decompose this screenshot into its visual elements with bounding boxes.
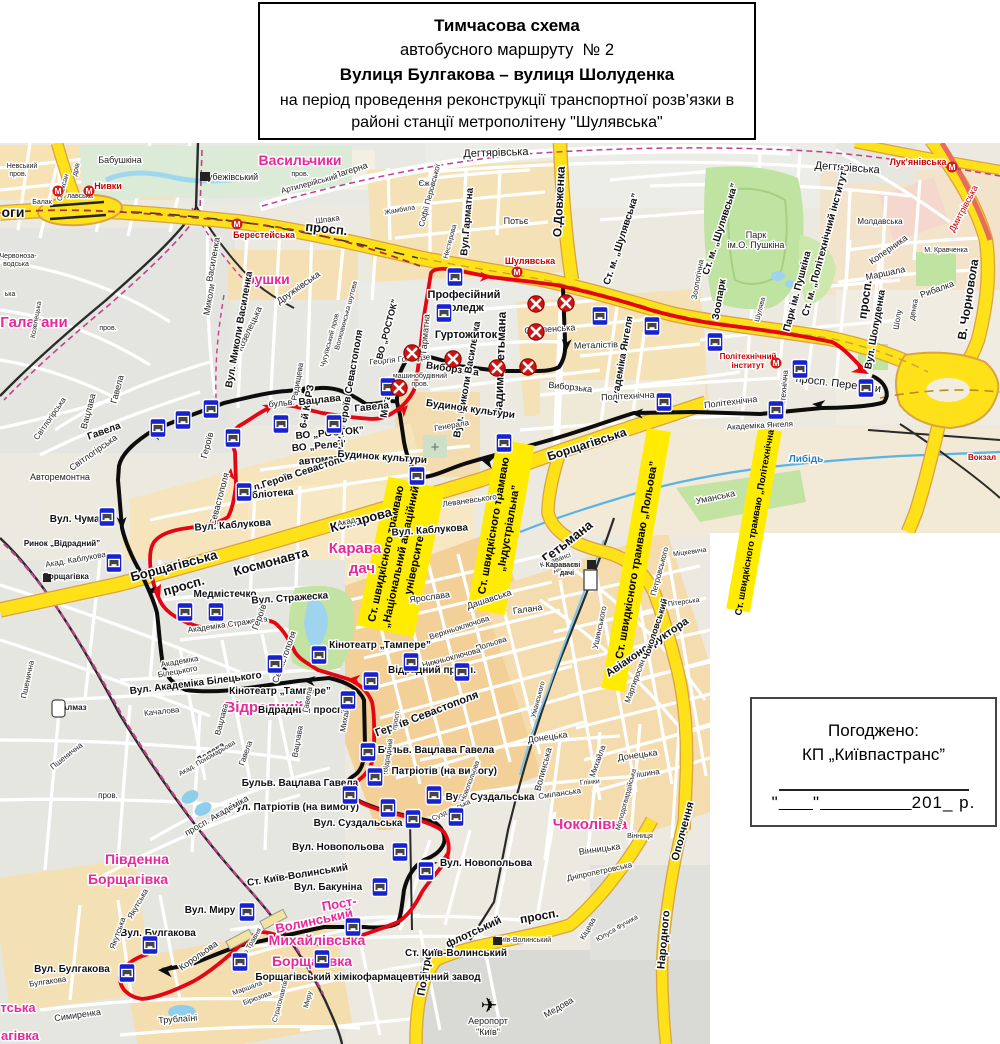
svg-text:пров.: пров. [291, 171, 308, 178]
svg-text:Авторемонтна: Авторемонтна [30, 472, 90, 482]
svg-text:Вокзал: Вокзал [968, 453, 996, 462]
svg-text:Червоноза-: Червоноза- [0, 253, 37, 260]
svg-text:дачі: дачі [560, 569, 574, 577]
svg-text:дач: дач [349, 560, 375, 577]
svg-text:Вул. Бакуніна: Вул. Бакуніна [294, 882, 363, 893]
svg-text:водська: водська [3, 261, 29, 268]
svg-text:Вул. Миру: Вул. Миру [185, 905, 236, 916]
svg-text:Політехнічний: Політехнічний [720, 352, 777, 361]
svg-text:Вул. Суздальська: Вул. Суздальська [446, 792, 535, 803]
svg-text:тська: тська [0, 1000, 36, 1015]
svg-text:М. Кравченка: М. Кравченка [924, 247, 968, 254]
svg-text:Борщагівка: Борщагівка [272, 953, 352, 969]
svg-text:Парк: Парк [746, 230, 766, 240]
svg-text:Невський: Невський [7, 162, 38, 170]
svg-text:Балак: Балак [32, 199, 52, 206]
svg-text:пров.: пров. [98, 791, 118, 800]
svg-text:оги: оги [2, 204, 25, 220]
svg-text:агівка: агівка [1, 1028, 40, 1043]
svg-text:Шулявська: Шулявська [505, 256, 556, 266]
svg-text:Рубежівський: Рубежівський [202, 172, 258, 182]
svg-text:Борщагівський хімікофармацевти: Борщагівський хімікофармацевтичний завод [255, 971, 481, 983]
svg-text:+: + [431, 439, 440, 456]
svg-text:Вул. Патріотів (на вимогу): Вул. Патріотів (на вимогу) [229, 802, 359, 813]
svg-text:Молдавська: Молдавська [857, 217, 903, 226]
svg-text:пров.: пров. [99, 325, 116, 332]
svg-text:Либідь: Либідь [789, 453, 824, 465]
svg-text:✈: ✈ [481, 995, 498, 1017]
svg-text:Вул. Новопольова: Вул. Новопольова [440, 858, 533, 869]
svg-text:Берестейська: Берестейська [233, 230, 296, 240]
svg-text:Металістів: Металістів [574, 339, 619, 351]
svg-text:Медмістечко: Медмістечко [194, 589, 257, 600]
svg-text:Бульв. Вацлава Гавела: Бульв. Вацлава Гавела [378, 745, 495, 756]
svg-text:Ст. Київ-Волинський: Ст. Київ-Волинський [405, 948, 507, 959]
svg-text:Аеропорт: Аеропорт [468, 1016, 508, 1026]
svg-text:Кінотеатр „Тампере”: Кінотеатр „Тампере” [229, 686, 331, 697]
svg-text:Єж: Єж [418, 179, 430, 188]
svg-text:Караваєві: Караваєві [546, 561, 581, 569]
svg-text:Лук’янівська: Лук’янівська [890, 157, 948, 167]
svg-text:ька: ька [5, 291, 16, 298]
svg-text:Київ-Волинський: Київ-Волинський [497, 936, 551, 944]
svg-text:Нивки: Нивки [94, 181, 122, 191]
svg-text:машинобудівний: машинобудівний [393, 372, 447, 380]
svg-text:Бабушкіна: Бабушкіна [98, 155, 142, 165]
svg-text:Ринок „Відрадний”: Ринок „Відрадний” [24, 539, 100, 548]
svg-text:Професійний: Професійний [428, 289, 501, 301]
svg-text:інститут: інститут [732, 361, 765, 370]
svg-text:пров.: пров. [411, 381, 428, 388]
svg-text:Карава: Карава [329, 540, 382, 557]
svg-text:Вул. Новопольова: Вул. Новопольова [292, 842, 385, 853]
svg-text:Гуртожиток: Гуртожиток [435, 329, 498, 341]
svg-text:Васильчики: Васильчики [259, 152, 342, 168]
svg-text:Кінотеатр „Тампере”: Кінотеатр „Тампере” [329, 640, 431, 651]
svg-text:Потьє: Потьє [504, 216, 529, 226]
svg-text:Вінниця: Вінниця [627, 832, 653, 840]
svg-text:Дегтярівська: Дегтярівська [463, 146, 530, 160]
svg-text:"Київ": "Київ" [476, 1027, 500, 1037]
svg-text:ім.О. Пушкіна: ім.О. Пушкіна [728, 240, 785, 250]
svg-text:пров.: пров. [9, 171, 26, 178]
svg-text:Борщагівка: Борщагівка [88, 871, 168, 887]
svg-text:Вул. Булгакова: Вул. Булгакова [34, 964, 110, 975]
svg-text:Південна: Південна [105, 851, 169, 867]
svg-text:Бульв. Вацлава Гавела: Бульв. Вацлава Гавела [242, 778, 359, 789]
svg-text:Вул. Суздальська: Вул. Суздальська [314, 818, 403, 829]
